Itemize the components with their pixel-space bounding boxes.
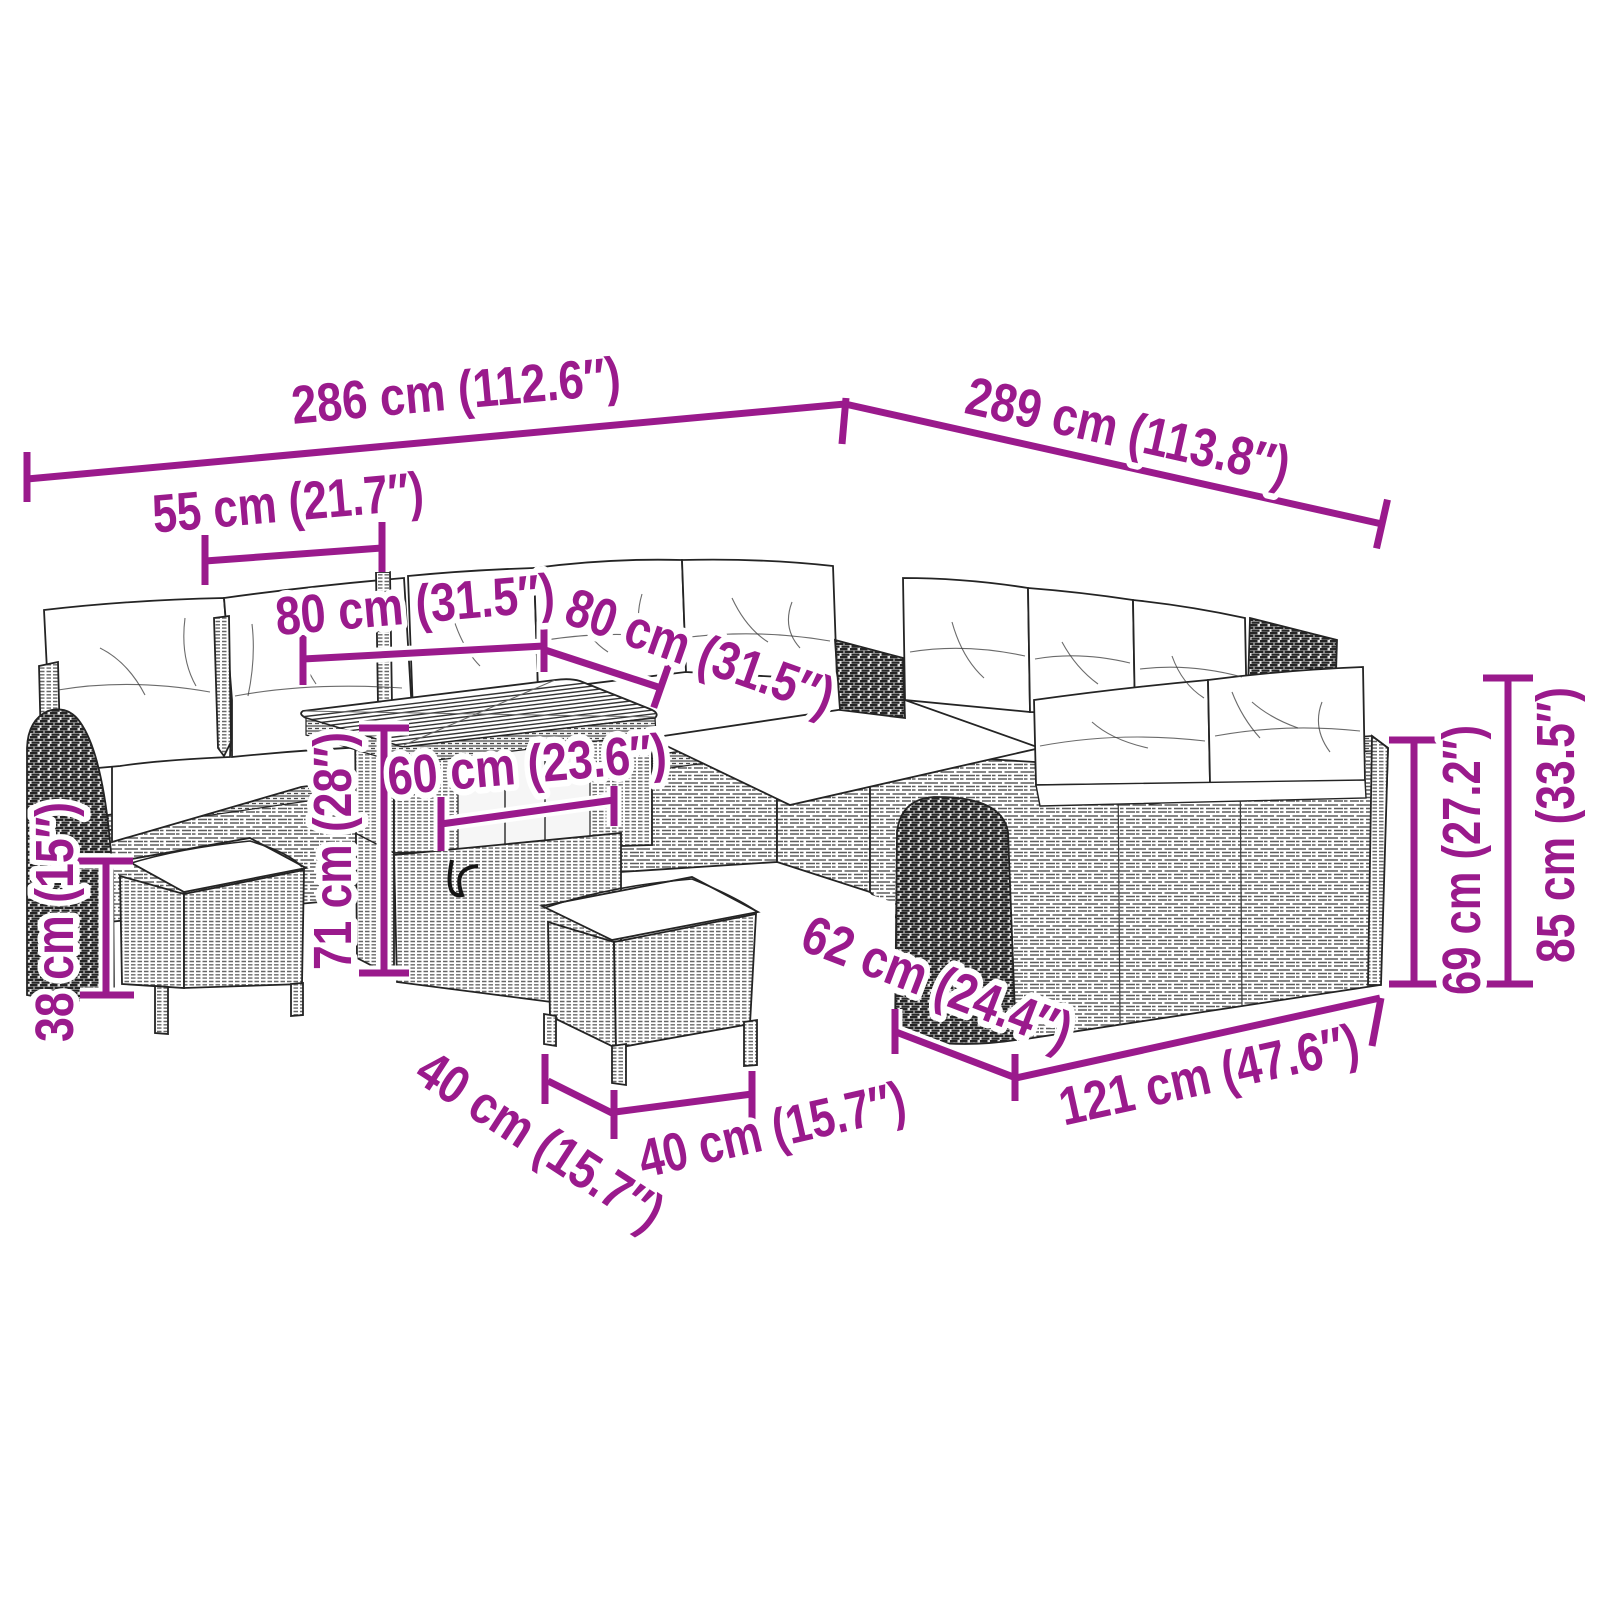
svg-text:69 cm (27.2″): 69 cm (27.2″) [1432,725,1492,995]
svg-text:71 cm (28″): 71 cm (28″) [303,732,363,970]
svg-text:85 cm (33.5″): 85 cm (33.5″) [1526,687,1586,963]
svg-text:38 cm (15″): 38 cm (15″) [25,802,85,1042]
